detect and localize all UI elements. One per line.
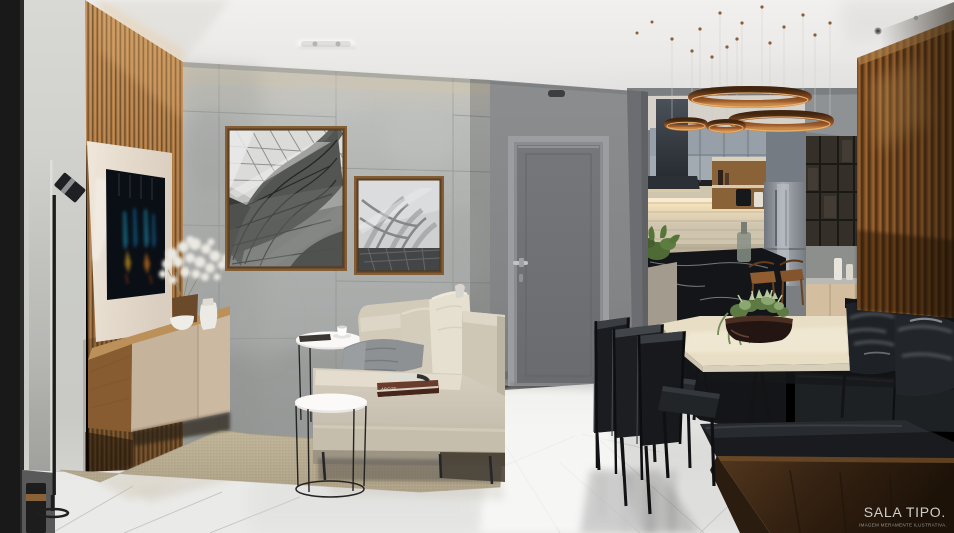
svg-text:ABOTE: ABOTE bbox=[381, 386, 397, 392]
svg-text:SALA TIPO.: SALA TIPO. bbox=[864, 504, 946, 520]
svg-text:IMAGEM MERAMENTE ILUSTRATIVA.: IMAGEM MERAMENTE ILUSTRATIVA. bbox=[859, 523, 947, 528]
